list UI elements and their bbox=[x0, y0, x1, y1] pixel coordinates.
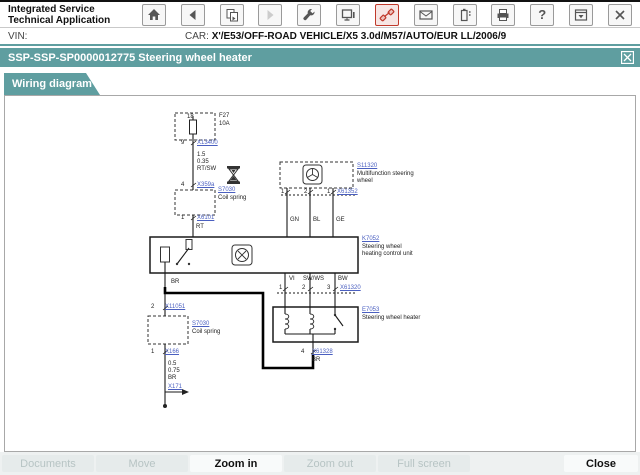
connector-link[interactable]: X11051 bbox=[165, 304, 185, 311]
coil-spring-link[interactable]: S7030 bbox=[218, 187, 235, 194]
wrench-button[interactable] bbox=[297, 4, 321, 26]
mf-pin-label: 1 bbox=[281, 189, 284, 196]
connector-link[interactable]: X13400 bbox=[197, 140, 218, 147]
connector-link[interactable]: X61320 bbox=[340, 285, 361, 292]
connector-link[interactable]: X6101 bbox=[197, 215, 214, 222]
control-unit-label2: heating control unit bbox=[362, 251, 413, 258]
wire-color-label: GN bbox=[290, 217, 299, 224]
wire-color-label: VI bbox=[289, 276, 295, 283]
help-icon: ? bbox=[538, 8, 546, 21]
printer-icon bbox=[495, 7, 511, 23]
minimize-window-icon bbox=[573, 7, 589, 23]
connector-icon bbox=[379, 7, 395, 23]
document-title: SSP-SSP-SP0000012775 Steering wheel heat… bbox=[8, 52, 252, 64]
document-title-bar: SSP-SSP-SP0000012775 Steering wheel heat… bbox=[0, 48, 640, 67]
vin-label: VIN: bbox=[8, 31, 27, 42]
wire-color-label: BR bbox=[168, 375, 176, 382]
mf-wheel-label1: Multifunction steering bbox=[357, 171, 414, 178]
documents-button[interactable]: Documents bbox=[2, 455, 94, 472]
control-unit-label1: Steering wheel bbox=[362, 244, 402, 251]
control-unit-link[interactable]: K7052 bbox=[362, 236, 379, 243]
wiring-diagram-panel: 18 F27 10A 9 X13400 1.5 0.35 RT/SW 4 X35… bbox=[4, 95, 636, 452]
hourglass-busy-icon bbox=[226, 166, 242, 184]
wire-spec-label: 0.5 bbox=[168, 361, 176, 368]
mf-wheel-link[interactable]: S11320 bbox=[357, 163, 377, 170]
wire-color-label: RT/SW bbox=[197, 166, 216, 173]
main-toolbar: Integrated Service Technical Application bbox=[0, 0, 640, 28]
fuse-name-label: F27 bbox=[219, 113, 229, 120]
app-title-line1: Integrated Service bbox=[8, 4, 136, 15]
wire-color-label: SW/WS bbox=[303, 276, 324, 283]
back-button[interactable] bbox=[181, 4, 205, 26]
connector-pin-label: 4 bbox=[181, 182, 184, 189]
monitor-button[interactable] bbox=[336, 4, 360, 26]
full-screen-button[interactable]: Full screen bbox=[378, 455, 470, 472]
car-value: X'/E53/OFF-ROAD VEHICLE/X5 3.0d/M57/AUTO… bbox=[212, 31, 507, 42]
heater-label: Steering wheel heater bbox=[362, 315, 420, 322]
heater-link[interactable]: E7053 bbox=[362, 307, 379, 314]
connector-pin-label: 9 bbox=[181, 140, 184, 147]
home-icon bbox=[146, 7, 162, 23]
forward-icon bbox=[262, 7, 278, 23]
car-info: CAR: X'/E53/OFF-ROAD VEHICLE/X5 3.0d/M57… bbox=[185, 31, 506, 42]
monitor-icon bbox=[340, 7, 356, 23]
printer-button[interactable] bbox=[491, 4, 515, 26]
mf-pin-label: 1 bbox=[327, 189, 330, 196]
help-button[interactable]: ? bbox=[530, 4, 554, 26]
close-document-icon bbox=[621, 51, 634, 64]
zoom-in-button[interactable]: Zoom in bbox=[190, 455, 282, 472]
wire-spec-label: 0.75 bbox=[168, 368, 180, 375]
wiring-diagram-svg bbox=[5, 96, 635, 451]
minimize-window-button[interactable] bbox=[569, 4, 593, 26]
connector-link[interactable]: X61352 bbox=[337, 189, 358, 196]
coil-spring-label: Coil spring bbox=[218, 195, 246, 202]
wire-color-label: BR bbox=[171, 279, 179, 286]
connector-link[interactable]: X61328 bbox=[312, 349, 333, 356]
wire-color-label: BW bbox=[338, 276, 348, 283]
connector-pin-label: 1 bbox=[181, 215, 184, 222]
tab-wiring-diagram[interactable]: Wiring diagram bbox=[4, 73, 100, 95]
ista-application-window: { "colors": {"teal":"#5f9ea0","link_blue… bbox=[0, 0, 640, 475]
wire-color-label: BL bbox=[313, 217, 320, 224]
fuse-pin-label: 18 bbox=[187, 114, 194, 121]
fuse-rating-label: 10A bbox=[219, 121, 230, 128]
forward-button[interactable] bbox=[258, 4, 282, 26]
car-label: CAR: bbox=[185, 31, 209, 42]
wire-color-label: GE bbox=[336, 217, 345, 224]
connector-link[interactable]: X166 bbox=[165, 349, 179, 356]
tab-label: Wiring diagram bbox=[12, 78, 92, 90]
mf-wheel-label2: wheel bbox=[357, 178, 373, 185]
heater-pin-label: 2 bbox=[302, 285, 305, 292]
connector-pin-label: 2 bbox=[151, 304, 154, 311]
heater-pin-label: 4 bbox=[301, 349, 304, 356]
zoom-out-button[interactable]: Zoom out bbox=[284, 455, 376, 472]
app-title-line2: Technical Application bbox=[8, 15, 136, 26]
battery-icon bbox=[457, 7, 473, 23]
copy-pages-icon bbox=[224, 7, 240, 23]
heater-pin-label: 3 bbox=[327, 285, 330, 292]
connector-pin-label: 1 bbox=[151, 349, 154, 356]
app-title: Integrated Service Technical Application bbox=[8, 4, 136, 26]
footer-button-bar: Documents Move Zoom in Zoom out Full scr… bbox=[0, 452, 640, 475]
copy-pages-button[interactable] bbox=[220, 4, 244, 26]
move-button[interactable]: Move bbox=[96, 455, 188, 472]
ground-link[interactable]: X171 bbox=[168, 384, 182, 391]
wire-spec-label: 0.35 bbox=[197, 159, 209, 166]
connector-link[interactable]: X359a bbox=[197, 182, 214, 189]
mail-button[interactable] bbox=[414, 4, 438, 26]
toolbar-icons: ? bbox=[142, 4, 632, 26]
vehicle-connector-button[interactable] bbox=[375, 4, 399, 26]
close-icon bbox=[612, 7, 628, 23]
battery-button[interactable] bbox=[453, 4, 477, 26]
divider-line bbox=[0, 44, 640, 46]
heater-pin-label: 1 bbox=[279, 285, 282, 292]
close-app-button[interactable] bbox=[608, 4, 632, 26]
wire-color-label: RT bbox=[196, 224, 204, 231]
back-icon bbox=[185, 7, 201, 23]
wrench-icon bbox=[301, 7, 317, 23]
home-button[interactable] bbox=[142, 4, 166, 26]
mf-pin-label: 2 bbox=[304, 189, 307, 196]
close-document-button[interactable] bbox=[621, 51, 634, 64]
close-button[interactable]: Close bbox=[564, 455, 638, 472]
coil-spring-link[interactable]: S7030 bbox=[192, 321, 209, 328]
wire-spec-label: 1.5 bbox=[197, 152, 205, 159]
wire-color-label: BR bbox=[312, 357, 320, 364]
coil-spring-label: Coil spring bbox=[192, 329, 220, 336]
vehicle-info-row: VIN: CAR: X'/E53/OFF-ROAD VEHICLE/X5 3.0… bbox=[0, 29, 640, 44]
mail-icon bbox=[418, 7, 434, 23]
